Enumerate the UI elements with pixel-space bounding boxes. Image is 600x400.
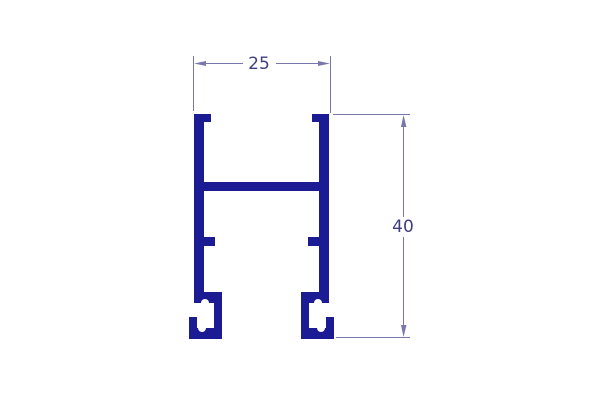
right-upper-notch: [314, 299, 322, 307]
right-mid-tab: [308, 237, 319, 246]
drawing-background: [0, 0, 600, 400]
right-hook-lip: [326, 317, 334, 339]
crossbar: [204, 182, 319, 191]
left-upper-notch: [201, 299, 209, 307]
profile-technical-drawing: 25 40: [0, 0, 600, 400]
left-mid-tab: [204, 237, 215, 246]
left-hook-lip: [189, 317, 197, 339]
width-dimension-label: 25: [248, 54, 270, 74]
right-lower-notch: [317, 324, 325, 332]
left-lower-notch: [198, 324, 206, 332]
drawing-canvas: 25 40: [0, 0, 600, 400]
right-web: [319, 114, 329, 303]
height-dimension-label: 40: [392, 217, 414, 237]
left-web: [194, 114, 204, 303]
